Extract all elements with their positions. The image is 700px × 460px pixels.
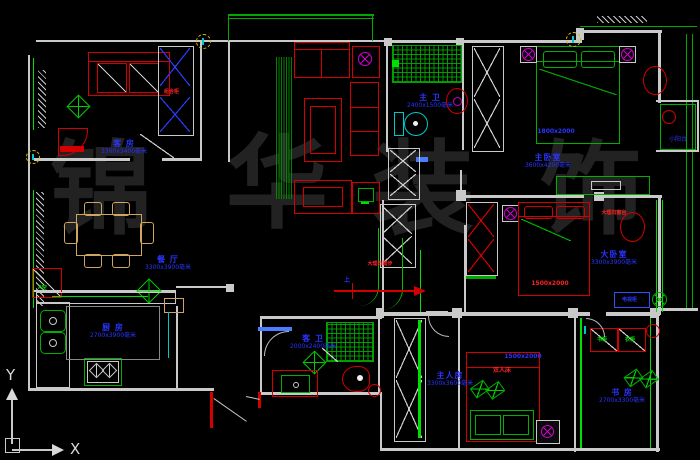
window-hatch	[38, 70, 46, 128]
sofa-line	[321, 49, 322, 77]
pillow	[556, 206, 585, 219]
switch-mark	[572, 36, 574, 43]
pillar	[568, 308, 578, 318]
room-label-dining: 餐 厅 3300x3900毫米	[145, 255, 191, 271]
vanity	[272, 370, 318, 397]
fan-icon	[652, 292, 667, 307]
toilet-bowl	[404, 112, 428, 136]
ucs-x-arrow	[52, 444, 64, 456]
room-name: 厨 房	[90, 323, 136, 332]
window-sill-label: 大理石窗台	[601, 210, 626, 216]
wardrobe-cell	[468, 204, 494, 237]
tv-cabinet	[294, 180, 352, 214]
door-swing	[428, 316, 449, 337]
lamp-icon	[358, 52, 372, 66]
sofa-cushion	[97, 63, 127, 93]
wall	[386, 44, 388, 152]
balcony-rail	[372, 14, 373, 41]
room-label-small-balcony: 小阳台	[669, 136, 687, 143]
lamp-icon	[621, 48, 634, 61]
cabinet-label: 组合柜	[164, 89, 179, 95]
bed-dim-label: 1500x2000	[504, 353, 541, 360]
sofa-line	[351, 131, 378, 132]
room-dims: 2700x3300毫米	[599, 397, 645, 404]
room-label-guest-bath: 客 卫 2000x2400毫米	[290, 334, 336, 350]
room-label-kitchen: 厨 房 2700x3900毫米	[90, 323, 136, 339]
cabinet-cell	[390, 174, 416, 196]
wardrobe-base	[466, 276, 496, 279]
room-name: 主 卫	[407, 93, 453, 102]
wall	[658, 308, 698, 311]
path-line	[382, 238, 403, 310]
wall	[390, 40, 582, 43]
counter-edge	[52, 296, 148, 297]
sofa-cushion	[129, 63, 159, 93]
bed-dim-label: 1500x2000	[531, 280, 568, 287]
room-label-big-bedroom: 大卧室 3300x3900毫米	[591, 250, 637, 266]
wall	[28, 55, 30, 390]
wall	[380, 448, 660, 451]
wall	[697, 100, 699, 152]
blanket-fold	[475, 415, 501, 435]
sofa-line	[295, 49, 349, 50]
path-line	[420, 250, 421, 312]
sofa-two-seat	[294, 42, 350, 78]
wall	[200, 40, 202, 160]
wall	[176, 286, 232, 288]
toilet-drain	[357, 375, 363, 381]
switch-mark	[32, 154, 34, 160]
direction-arrow-head	[414, 286, 426, 296]
room-dims: 2400x1500毫米	[407, 102, 453, 109]
tv-cabinet-label: 电视柜	[622, 297, 637, 303]
wall	[580, 30, 662, 33]
room-name: 餐 厅	[145, 255, 191, 264]
wall	[656, 150, 699, 152]
wardrobe-cell	[160, 48, 190, 86]
room-name: 大卧室	[591, 250, 637, 259]
balcony-rail	[228, 18, 374, 19]
path-line	[360, 228, 379, 306]
pillar	[452, 308, 462, 318]
dresser	[556, 176, 650, 195]
sheet-fold	[521, 219, 571, 241]
pillar	[226, 284, 234, 292]
cabinet-box: 衣柜	[618, 328, 646, 352]
armchair	[620, 212, 645, 242]
balcony-rail	[686, 34, 687, 310]
ucs-y-arrow	[6, 388, 18, 400]
walkin-wardrobe	[394, 318, 426, 442]
toilet-bowl	[342, 366, 370, 392]
door-swing	[586, 318, 605, 337]
pillar	[384, 38, 392, 46]
basin-drain	[293, 382, 299, 388]
dining-chair	[84, 202, 102, 216]
room-name: 客 卫	[290, 334, 336, 343]
room-dims: 3300x3600毫米	[427, 380, 473, 387]
dresser-inner	[591, 181, 621, 190]
door-jamb	[210, 392, 213, 428]
balcony-rail	[580, 26, 697, 27]
tv-cabinet-inner	[303, 187, 343, 207]
dining-table	[76, 214, 142, 256]
pillow	[543, 51, 577, 68]
wardrobe	[472, 46, 504, 152]
ceiling-fan-icon	[66, 94, 90, 118]
room-dims: 2700x3900毫米	[90, 332, 136, 339]
stool	[646, 324, 660, 338]
wall	[380, 394, 382, 451]
sink-drain	[49, 317, 57, 325]
pillow	[524, 206, 553, 219]
wall	[228, 40, 230, 162]
switch-mark	[584, 326, 586, 334]
tv-set	[352, 182, 380, 214]
switch-icon	[566, 32, 581, 47]
blanket	[470, 410, 534, 440]
room-label-study: 书 房 2700x3300毫米	[599, 388, 645, 404]
ucs-x-label: X	[70, 440, 80, 458]
arrow-tick	[352, 283, 353, 299]
wall	[28, 388, 214, 391]
wardrobe-cell	[474, 48, 500, 97]
balcony-rail	[228, 14, 374, 16]
wall	[574, 316, 576, 452]
sliding-door-line	[168, 312, 169, 358]
room-name: 书 房	[599, 388, 645, 397]
cabinet-cell	[382, 206, 412, 234]
cad-floorplan-viewport[interactable]: 锦 华 装 饰	[0, 0, 700, 460]
sheet-fold	[539, 69, 617, 95]
pillar	[456, 190, 466, 201]
ac-label: A空	[38, 285, 47, 291]
door-leaf	[213, 398, 246, 422]
sofa-three-seat	[350, 82, 379, 156]
wall	[260, 316, 382, 319]
speaker-icon	[639, 370, 659, 389]
room-name: 小阳台	[669, 136, 687, 143]
dining-chair	[112, 254, 130, 268]
tv-wall-texture	[276, 57, 292, 199]
sofa-line	[351, 107, 378, 108]
marble-step-label: 大理石踏步	[367, 261, 392, 267]
pillow	[581, 51, 615, 68]
dining-chair	[112, 202, 130, 216]
sliding-door	[418, 320, 421, 438]
drain	[392, 60, 399, 67]
dining-chair	[84, 254, 102, 268]
blanket-fold	[503, 415, 529, 435]
double-bed-label: 双人床	[493, 367, 511, 374]
wall	[176, 306, 178, 390]
wall-finish	[580, 318, 582, 448]
sink-drain	[49, 339, 57, 347]
switch-icon	[196, 34, 211, 49]
toilet-tank	[394, 112, 404, 136]
room-dims: 3600x4200毫米	[525, 162, 571, 169]
lamp-icon	[504, 207, 517, 220]
balcony-rail	[692, 34, 693, 310]
cabinet-cell	[390, 150, 416, 172]
desk-chair	[60, 146, 84, 152]
switch-mark	[202, 38, 204, 45]
toilet-drain	[413, 121, 418, 126]
dining-chair	[140, 222, 154, 244]
ucs-y-label: Y	[6, 366, 15, 384]
ucs-x-axis	[12, 449, 56, 451]
lamp-icon	[522, 48, 535, 61]
door-jamb	[258, 392, 261, 408]
wardrobe-cell	[468, 239, 494, 272]
armchair	[643, 66, 667, 95]
coffee-table	[304, 98, 342, 162]
room-label-master-bath: 主 卫 2400x1500毫米	[407, 93, 453, 109]
tv-base	[361, 202, 369, 204]
switch-icon	[26, 150, 40, 164]
tv-screen	[358, 188, 374, 202]
sink-basin	[40, 310, 66, 332]
window	[33, 58, 34, 130]
wall	[34, 158, 130, 161]
cabinet-label: 衣柜	[625, 337, 635, 343]
basin-icon	[662, 110, 676, 124]
bed-dim-label: 1800x2000	[537, 128, 574, 135]
room-label-guest-room: 客 房 3300x3400毫米	[101, 139, 147, 155]
room-name: 主卧室	[525, 153, 571, 162]
up-label: 上	[344, 277, 350, 284]
basin-drain	[453, 97, 462, 106]
stove	[84, 358, 122, 386]
sink-basin	[40, 332, 66, 354]
coffee-table-inner	[310, 106, 336, 154]
room-dims: 3300x3900毫米	[591, 259, 637, 266]
wardrobe-cell	[474, 99, 500, 148]
cabinet-label: 书柜	[597, 337, 607, 343]
room-label-main-room: 主人房 3300x3600毫米	[427, 371, 473, 387]
room-dims: 2000x2400毫米	[290, 343, 336, 350]
floor-drain	[368, 384, 381, 397]
lamp-icon	[541, 425, 554, 438]
balcony-hatch	[597, 16, 647, 23]
balcony-rail	[228, 14, 229, 41]
room-name: 主人房	[427, 371, 473, 380]
wall	[656, 100, 699, 102]
dining-chair	[64, 222, 78, 244]
wall	[380, 312, 432, 316]
tv-cabinet-low: 电视柜	[614, 292, 650, 308]
room-name: 客 房	[101, 139, 147, 148]
room-dims: 3300x3900毫米	[145, 264, 191, 271]
wall	[378, 316, 380, 395]
wall	[462, 195, 584, 198]
wall	[162, 158, 202, 161]
wall	[602, 195, 662, 198]
wardrobe: 组合柜	[158, 46, 194, 136]
room-dims: 3300x3400毫米	[101, 148, 147, 155]
sofa-back-line	[89, 61, 169, 62]
room-label-master-bedroom: 主卧室 3600x4200毫米	[525, 153, 571, 169]
fridge	[164, 298, 184, 313]
shower-tiles	[392, 45, 462, 83]
direction-arrow-line	[334, 290, 418, 292]
wardrobe	[466, 202, 498, 276]
door-swing	[264, 331, 289, 356]
basin	[281, 375, 310, 393]
hall-cabinet	[388, 148, 420, 200]
wardrobe-cell	[160, 97, 190, 132]
